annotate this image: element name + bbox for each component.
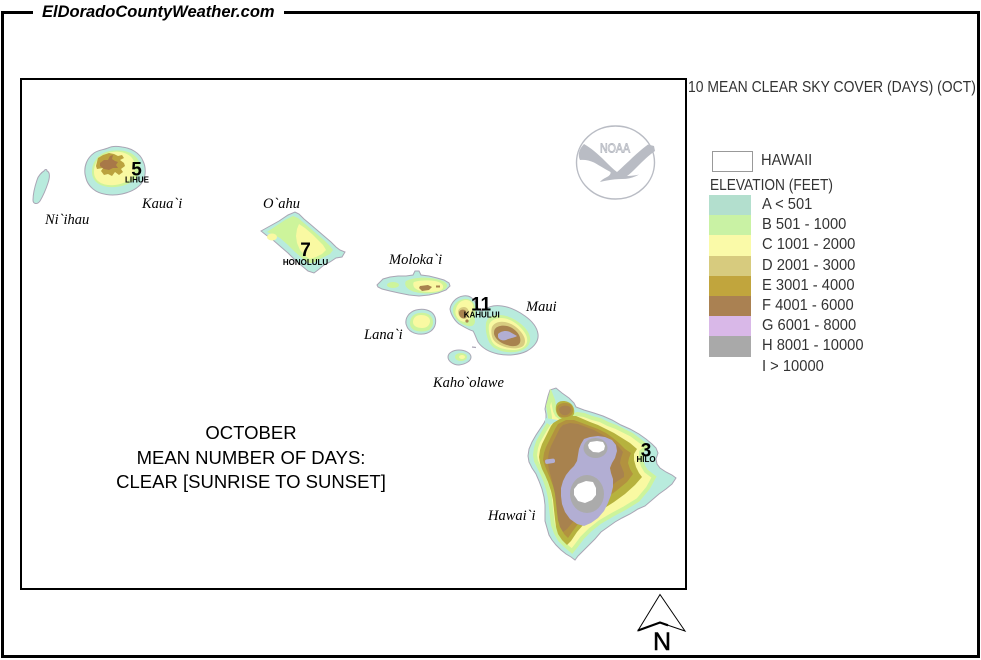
svg-text:Kaua`i: Kaua`i	[141, 196, 182, 212]
svg-text:Kaho`olawe: Kaho`olawe	[432, 375, 504, 391]
svg-text:Moloka`i: Moloka`i	[388, 252, 442, 268]
svg-text:Ni`ihau: Ni`ihau	[44, 212, 89, 228]
svg-text:Maui: Maui	[525, 299, 557, 315]
svg-text:HILO: HILO	[636, 455, 655, 464]
svg-text:O`ahu: O`ahu	[263, 196, 300, 212]
svg-text:Lana`i: Lana`i	[363, 327, 403, 343]
svg-text:HONOLULU: HONOLULU	[283, 258, 329, 267]
svg-text:LIHUE: LIHUE	[125, 176, 150, 185]
svg-text:NOAA: NOAA	[600, 141, 630, 156]
svg-text:KAHULUI: KAHULUI	[464, 311, 500, 320]
svg-text:Hawai`i: Hawai`i	[487, 508, 536, 524]
svg-text:N: N	[653, 628, 671, 656]
